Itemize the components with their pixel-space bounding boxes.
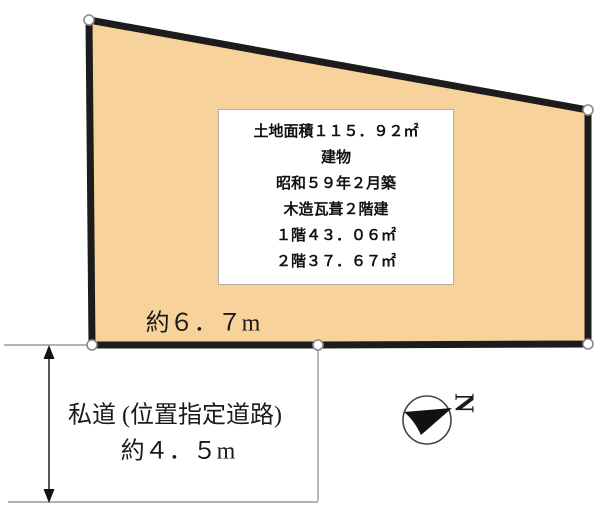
info-line-second-floor-area: ２階３７．６７㎡ xyxy=(276,249,396,275)
info-line-first-floor-area: １階４３．０６㎡ xyxy=(276,223,396,249)
site-plan-diagram: 土地面積１１５．９２㎡ 建物 昭和５９年２月築 木造瓦葺２階建 １階４３．０６㎡… xyxy=(0,0,600,517)
info-line-land-area: 土地面積１１５．９２㎡ xyxy=(253,119,418,145)
road-name-label: 私道 (位置指定道路) xyxy=(68,395,282,430)
vertex-marker-top-right xyxy=(583,105,593,115)
land-width-label: 約６．７m xyxy=(146,303,261,338)
road-width-arrowhead-down-icon xyxy=(44,489,55,503)
vertex-marker-bottom-mid xyxy=(313,340,323,350)
property-info-box: 土地面積１１５．９２㎡ 建物 昭和５９年２月築 木造瓦葺２階建 １階４３．０６㎡… xyxy=(218,109,454,285)
vertex-marker-top-left xyxy=(84,15,94,25)
north-label: N xyxy=(449,393,480,413)
road-width-label: 約４．５m xyxy=(121,431,236,466)
vertex-marker-bottom-right xyxy=(583,339,593,349)
vertex-marker-bottom-left xyxy=(87,340,97,350)
road-width-arrowhead-up-icon xyxy=(44,345,55,359)
info-line-built-date: 昭和５９年２月築 xyxy=(276,171,396,197)
info-line-building: 建物 xyxy=(321,145,351,171)
info-line-structure: 木造瓦葺２階建 xyxy=(283,197,388,223)
